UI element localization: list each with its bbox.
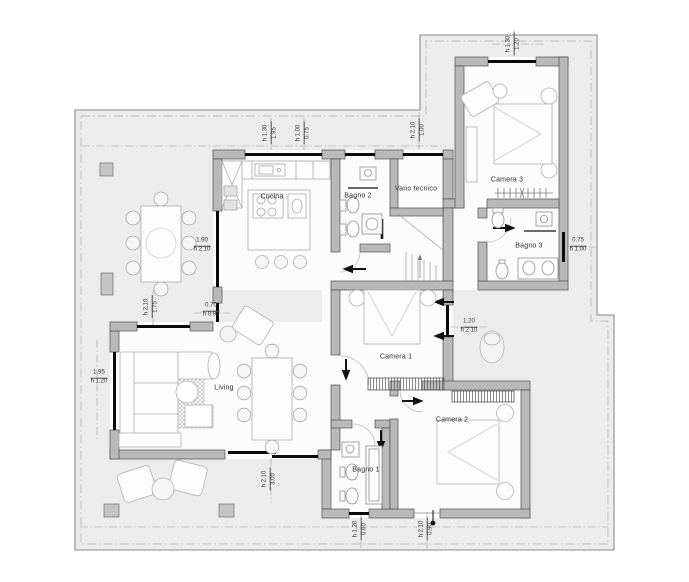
radiator-camera-1 — [368, 378, 444, 390]
pouf-living — [176, 381, 198, 403]
dimension-label-camera1-east-door: 1.20h 2.10 — [458, 319, 481, 336]
room-label-camera-3: Camera 3 — [491, 177, 523, 184]
dimension-label-camera2-south-door: h 2.100.90 — [419, 518, 436, 541]
floor-plan-canvas — [0, 0, 689, 582]
dimension-label-living-north-opening: h 2.101.75 — [144, 296, 161, 319]
terrace-armchair-east — [480, 331, 504, 363]
room-label-bagno-2: Bagno 2 — [344, 193, 371, 200]
dimension-label-bath2-north-window: h 1.000.75 — [296, 122, 313, 145]
room-label-bagno-3: Bagno 3 — [515, 243, 542, 250]
floor-plan: Cucina Bagno 2 Vano tecnico Camera 3 Bag… — [0, 0, 689, 582]
dimension-label-bagno1-south-window: h 1.200.60 — [353, 518, 370, 541]
room-label-vano-tecnico: Vano tecnico — [395, 186, 437, 193]
radiator-camera-2 — [452, 391, 514, 402]
tv-bench-living — [119, 433, 181, 447]
dimension-label-camera3-north-window: h 1.301.20 — [506, 33, 523, 56]
room-label-bagno-1: Bagno 1 — [352, 467, 379, 474]
dimension-label-north-entry-door: h 2.101.00 — [411, 119, 428, 142]
dimension-label-bagno3-east-window: 0.75h 1.00 — [567, 238, 590, 255]
room-label-cucina: Cucina — [261, 194, 284, 201]
dimension-label-kitchen-west-window: 1.90h 2.10 — [191, 238, 214, 255]
dimension-label-kitchen-north-window: h 1.301.95 — [263, 122, 280, 145]
stools-kitchen — [256, 256, 307, 269]
room-label-camera-1: Camera 1 — [380, 354, 412, 361]
dimension-label-kitchen-pass-window: 0.70h 0.90 — [200, 303, 223, 320]
room-label-camera-2: Camera 2 — [436, 417, 468, 424]
dimension-label-living-south-slider: h 2.103.00 — [262, 468, 279, 491]
dimension-label-living-west-window: 1.95h 1.20 — [88, 370, 111, 387]
side-table-living — [185, 405, 212, 427]
room-label-living: Living — [214, 385, 234, 392]
